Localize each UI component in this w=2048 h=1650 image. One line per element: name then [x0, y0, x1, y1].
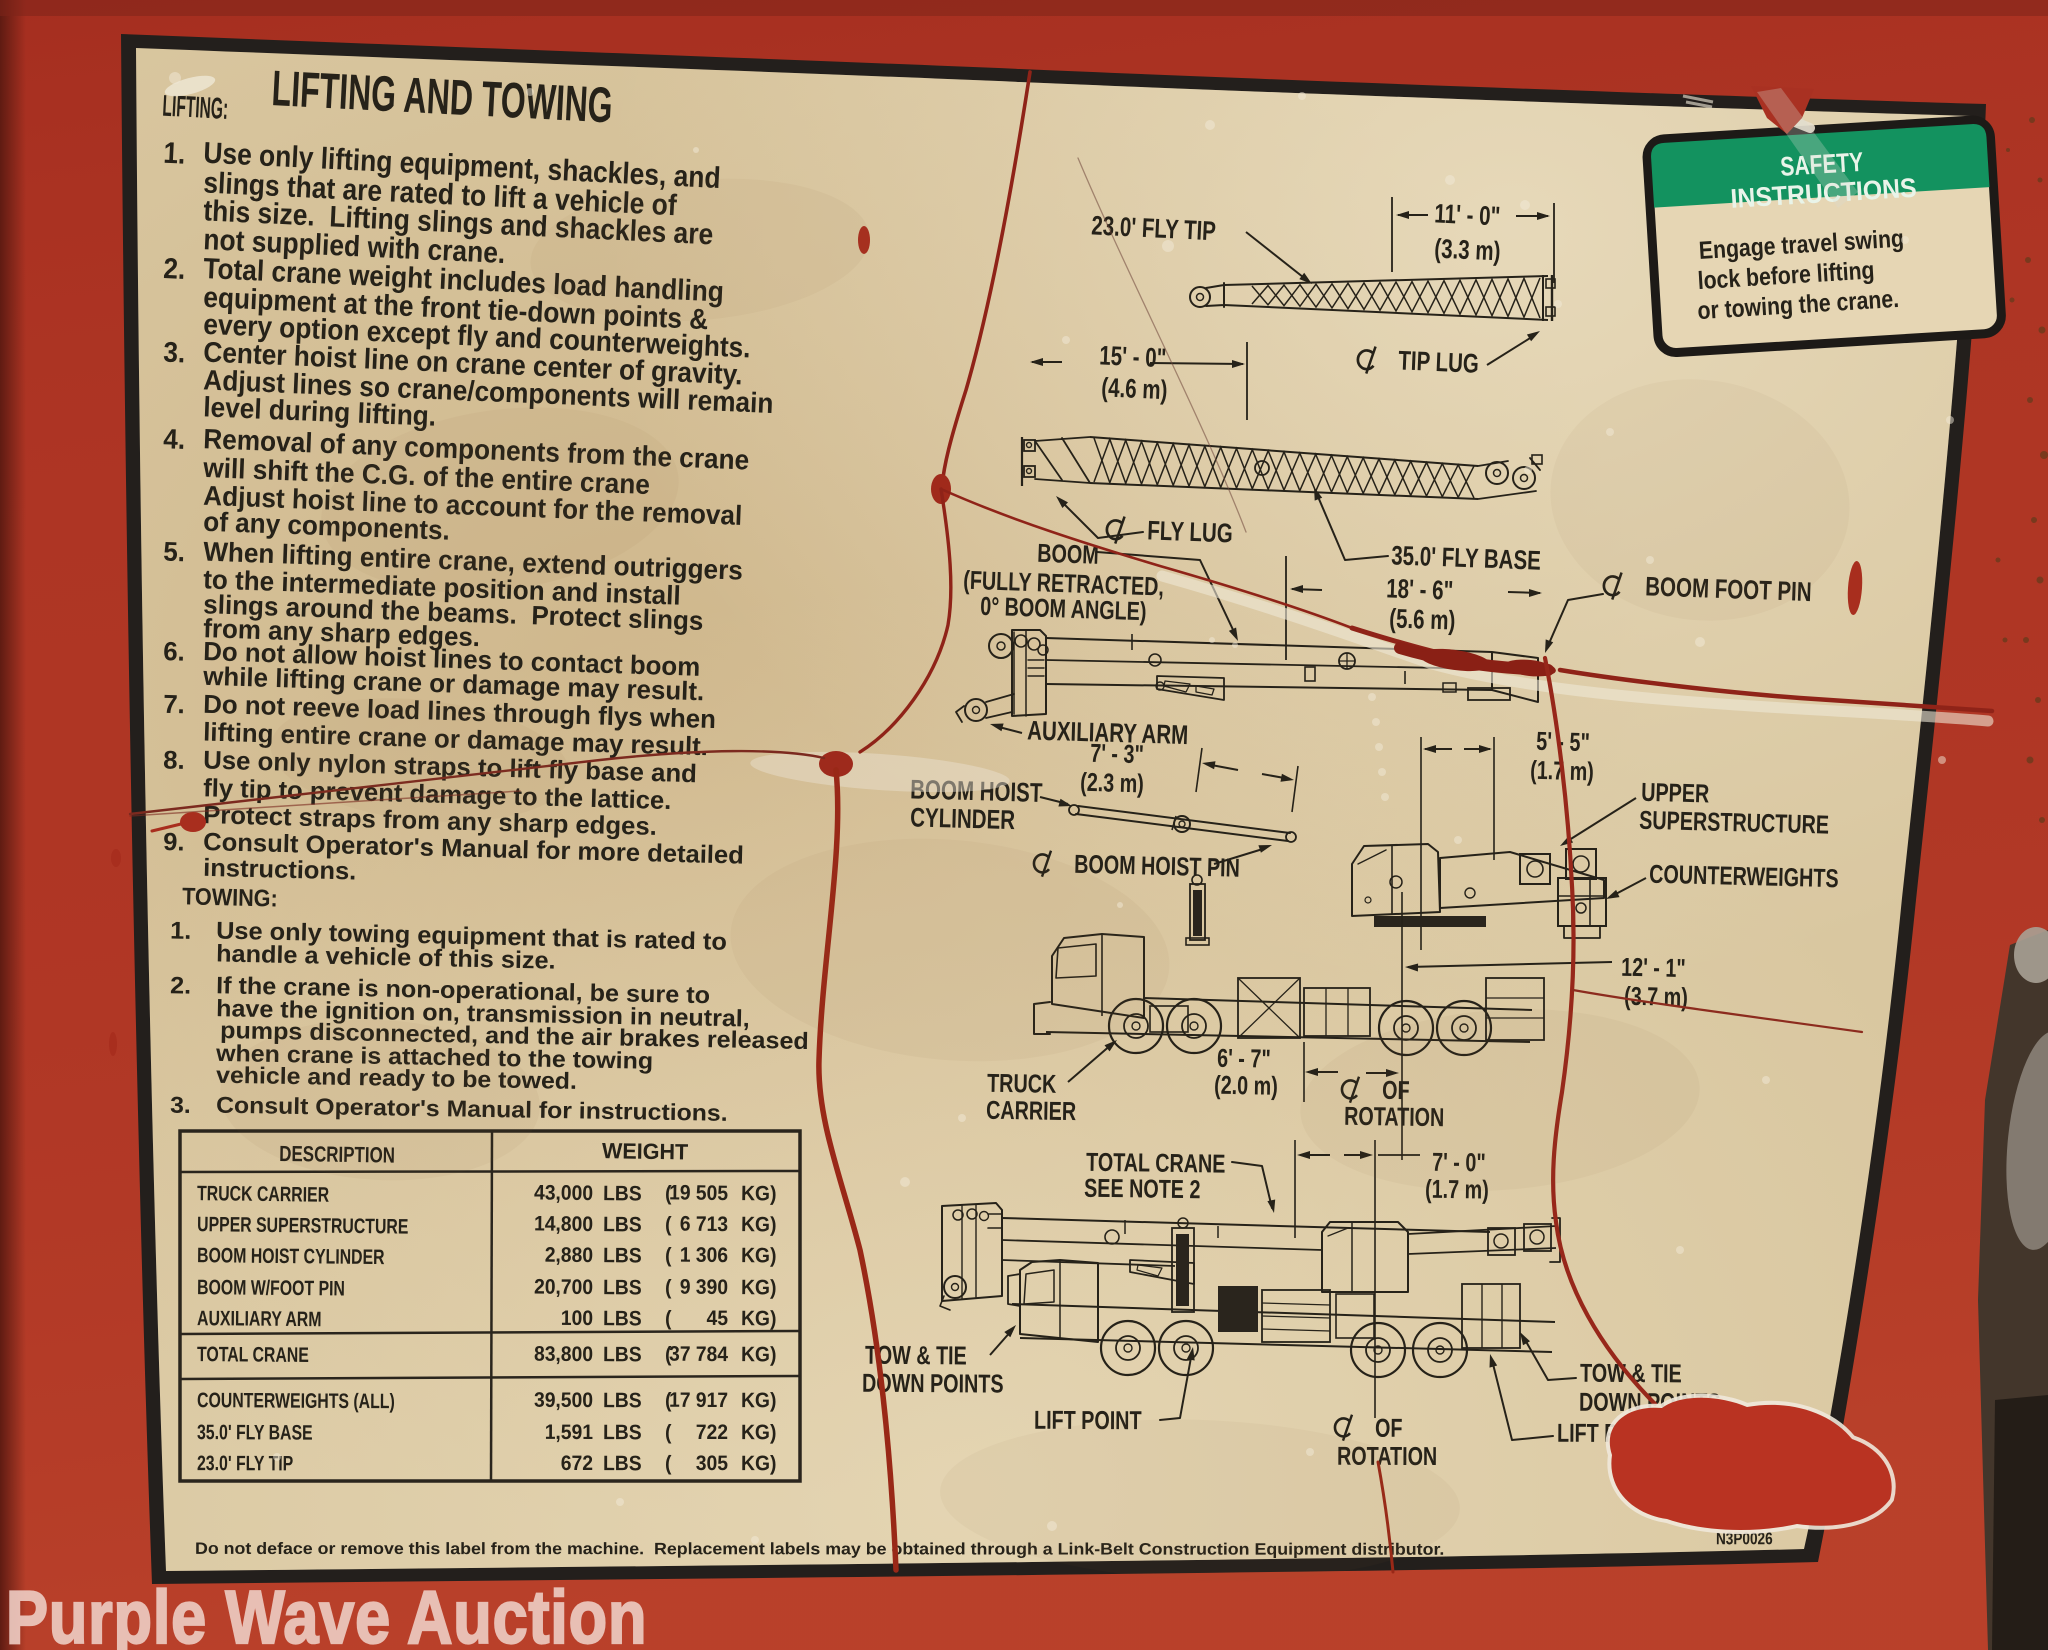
svg-text:(4.6 m): (4.6 m) — [1101, 373, 1168, 406]
svg-text:LBS: LBS — [603, 1213, 642, 1236]
svg-text:AUXILIARY ARM: AUXILIARY ARM — [197, 1306, 322, 1331]
svg-text:1,591: 1,591 — [545, 1421, 593, 1444]
svg-text:KG): KG) — [741, 1307, 777, 1330]
svg-text:0° BOOM ANGLE): 0° BOOM ANGLE) — [980, 591, 1147, 626]
svg-text:KG): KG) — [741, 1452, 776, 1475]
svg-text:6 713: 6 713 — [680, 1213, 729, 1236]
svg-text:14,800: 14,800 — [534, 1213, 593, 1237]
svg-text:CARRIER: CARRIER — [986, 1095, 1077, 1126]
svg-text:1.: 1. — [163, 135, 187, 170]
svg-text:(2.3 m): (2.3 m) — [1080, 767, 1144, 798]
svg-text:instructions.: instructions. — [203, 854, 357, 885]
svg-text:35.0' FLY BASE: 35.0' FLY BASE — [1391, 541, 1542, 577]
svg-text:FLY LUG: FLY LUG — [1147, 516, 1234, 549]
svg-text:KG): KG) — [741, 1182, 777, 1205]
svg-text:305: 305 — [696, 1452, 728, 1475]
svg-text:722: 722 — [696, 1421, 728, 1444]
svg-text:39,500: 39,500 — [534, 1389, 593, 1412]
svg-text:CYLINDER: CYLINDER — [910, 803, 1016, 836]
svg-text:KG): KG) — [741, 1389, 777, 1412]
svg-text:(: ( — [665, 1421, 672, 1444]
svg-text:BOOM W/FOOT PIN: BOOM W/FOOT PIN — [197, 1275, 345, 1300]
svg-text:TOW & TIE: TOW & TIE — [1580, 1358, 1682, 1388]
svg-text:2,880: 2,880 — [545, 1244, 594, 1267]
svg-text:COUNTERWEIGHTS (ALL): COUNTERWEIGHTS (ALL) — [197, 1388, 395, 1413]
svg-text:7.: 7. — [163, 691, 185, 720]
svg-text:17 917: 17 917 — [669, 1389, 728, 1412]
svg-text:(3.3 m): (3.3 m) — [1434, 234, 1501, 267]
svg-text:KG): KG) — [741, 1276, 777, 1299]
svg-text:5.: 5. — [163, 536, 186, 567]
svg-text:TOTAL CRANE: TOTAL CRANE — [197, 1342, 309, 1367]
svg-text:LBS: LBS — [603, 1307, 642, 1330]
svg-text:LBS: LBS — [603, 1276, 642, 1299]
svg-text:(: ( — [665, 1307, 672, 1330]
svg-text:LBS: LBS — [603, 1421, 642, 1444]
svg-text:LBS: LBS — [603, 1182, 642, 1205]
svg-text:Purple Wave Auction: Purple Wave Auction — [6, 1575, 647, 1650]
svg-text:83,800: 83,800 — [534, 1343, 593, 1366]
svg-text:BOOM: BOOM — [1037, 538, 1099, 569]
svg-text:672: 672 — [561, 1452, 593, 1475]
svg-text:WEIGHT: WEIGHT — [602, 1138, 689, 1165]
svg-text:LBS: LBS — [603, 1343, 642, 1366]
svg-text:2.: 2. — [163, 252, 186, 285]
svg-text:TRUCK CARRIER: TRUCK CARRIER — [197, 1181, 330, 1206]
svg-text:15' - 0": 15' - 0" — [1099, 341, 1167, 374]
svg-text:KG): KG) — [741, 1213, 777, 1236]
svg-text:35.0' FLY BASE: 35.0' FLY BASE — [197, 1420, 313, 1444]
svg-text:3.: 3. — [163, 336, 186, 369]
svg-text:6.: 6. — [163, 636, 186, 667]
svg-text:KG): KG) — [741, 1343, 777, 1366]
svg-text:COUNTERWEIGHTS: COUNTERWEIGHTS — [1649, 859, 1839, 893]
svg-text:BOOM HOIST CYLINDER: BOOM HOIST CYLINDER — [197, 1243, 385, 1269]
svg-text:3.: 3. — [170, 1092, 191, 1118]
svg-text:(2.0 m): (2.0 m) — [1214, 1070, 1278, 1100]
svg-text:TOWING:: TOWING: — [182, 882, 278, 912]
svg-text:18' - 6": 18' - 6" — [1386, 574, 1454, 607]
svg-text:20,700: 20,700 — [534, 1276, 593, 1299]
svg-text:5' - 5": 5' - 5" — [1536, 726, 1590, 757]
svg-text:45: 45 — [706, 1307, 728, 1330]
svg-text:KG): KG) — [741, 1244, 777, 1267]
svg-text:(: ( — [665, 1244, 672, 1267]
svg-text:(: ( — [665, 1452, 672, 1475]
svg-text:LBS: LBS — [603, 1452, 642, 1475]
svg-text:LBS: LBS — [603, 1389, 642, 1412]
svg-text:1 306: 1 306 — [680, 1244, 729, 1267]
svg-text:(: ( — [665, 1276, 672, 1299]
svg-text:7' - 3": 7' - 3" — [1090, 738, 1144, 769]
svg-text:11' - 0": 11' - 0" — [1434, 199, 1501, 232]
svg-text:UPPER: UPPER — [1641, 777, 1710, 808]
svg-text:TRUCK: TRUCK — [987, 1068, 1057, 1098]
svg-text:SUPERSTRUCTURE: SUPERSTRUCTURE — [1639, 805, 1830, 839]
svg-text:2.: 2. — [170, 973, 192, 1000]
svg-text:37 784: 37 784 — [669, 1343, 729, 1366]
svg-text:1.: 1. — [170, 918, 192, 945]
svg-text:4.: 4. — [163, 422, 186, 455]
svg-text:(5.6 m): (5.6 m) — [1389, 604, 1456, 637]
svg-text:(: ( — [665, 1213, 672, 1236]
svg-text:LBS: LBS — [603, 1244, 642, 1267]
svg-text:43,000: 43,000 — [534, 1182, 593, 1206]
svg-text:UPPER SUPERSTRUCTURE: UPPER SUPERSTRUCTURE — [197, 1212, 409, 1238]
svg-text:9.: 9. — [163, 828, 185, 856]
svg-text:OF: OF — [1375, 1413, 1403, 1442]
svg-text:KG): KG) — [741, 1421, 776, 1444]
svg-text:BOOM HOIST PIN: BOOM HOIST PIN — [1074, 849, 1240, 882]
svg-text:SEE NOTE 2: SEE NOTE 2 — [1084, 1173, 1201, 1204]
svg-text:6' - 7": 6' - 7" — [1217, 1043, 1271, 1073]
svg-text:9 390: 9 390 — [680, 1276, 729, 1299]
svg-text:19 505: 19 505 — [669, 1182, 728, 1206]
svg-text:12' - 1": 12' - 1" — [1621, 952, 1686, 983]
svg-text:TIP LUG: TIP LUG — [1398, 346, 1480, 380]
svg-text:100: 100 — [561, 1307, 593, 1330]
svg-text:8.: 8. — [163, 746, 185, 774]
